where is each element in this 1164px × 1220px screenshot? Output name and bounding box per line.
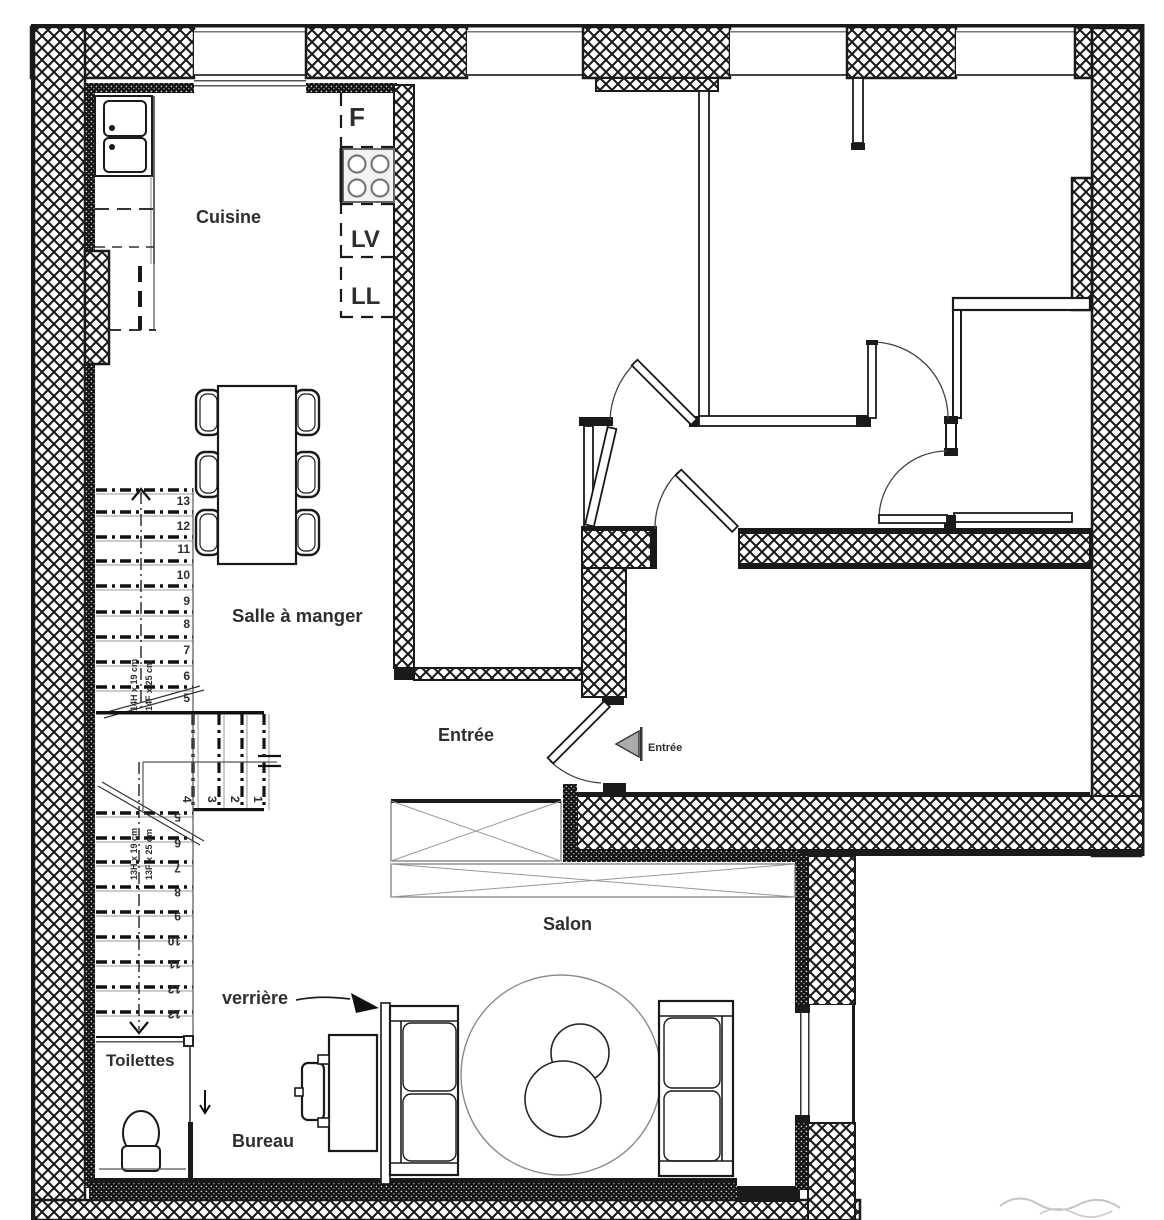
svg-text:9: 9: [183, 594, 190, 608]
svg-text:LV: LV: [351, 226, 380, 253]
svg-text:Salle à manger: Salle à manger: [232, 605, 363, 626]
svg-text:13H x 19 cm: 13H x 19 cm: [129, 828, 139, 880]
svg-text:verrière: verrière: [222, 988, 288, 1008]
svg-text:LL: LL: [351, 283, 380, 310]
svg-text:12: 12: [167, 982, 181, 996]
svg-text:9: 9: [174, 909, 181, 923]
svg-text:5: 5: [183, 691, 190, 705]
svg-text:8: 8: [183, 617, 190, 631]
svg-text:F: F: [349, 102, 365, 132]
svg-text:1: 1: [251, 796, 265, 803]
svg-text:13F x 25 cm: 13F x 25 cm: [144, 829, 154, 880]
svg-text:3: 3: [205, 796, 219, 803]
svg-text:10: 10: [167, 934, 181, 948]
svg-text:4: 4: [180, 796, 194, 803]
svg-text:5: 5: [174, 810, 181, 824]
svg-text:Entrée: Entrée: [648, 742, 682, 754]
svg-text:Salon: Salon: [543, 914, 592, 934]
svg-text:Cuisine: Cuisine: [196, 207, 261, 227]
svg-text:7: 7: [174, 861, 181, 875]
svg-text:Entrée: Entrée: [438, 725, 494, 745]
svg-text:7: 7: [183, 643, 190, 657]
svg-text:11: 11: [168, 957, 181, 971]
svg-text:11: 11: [177, 542, 190, 556]
svg-text:6: 6: [174, 836, 181, 850]
svg-text:13: 13: [167, 1007, 181, 1021]
svg-text:10: 10: [177, 568, 191, 582]
svg-text:12: 12: [177, 519, 191, 533]
svg-text:Bureau: Bureau: [232, 1131, 294, 1151]
svg-text:14F x 25 cm: 14F x 25 cm: [144, 660, 154, 711]
svg-text:13: 13: [177, 494, 191, 508]
svg-text:2: 2: [228, 796, 242, 803]
svg-text:6: 6: [183, 669, 190, 683]
svg-text:8: 8: [174, 885, 181, 899]
svg-text:Toilettes: Toilettes: [106, 1051, 175, 1070]
